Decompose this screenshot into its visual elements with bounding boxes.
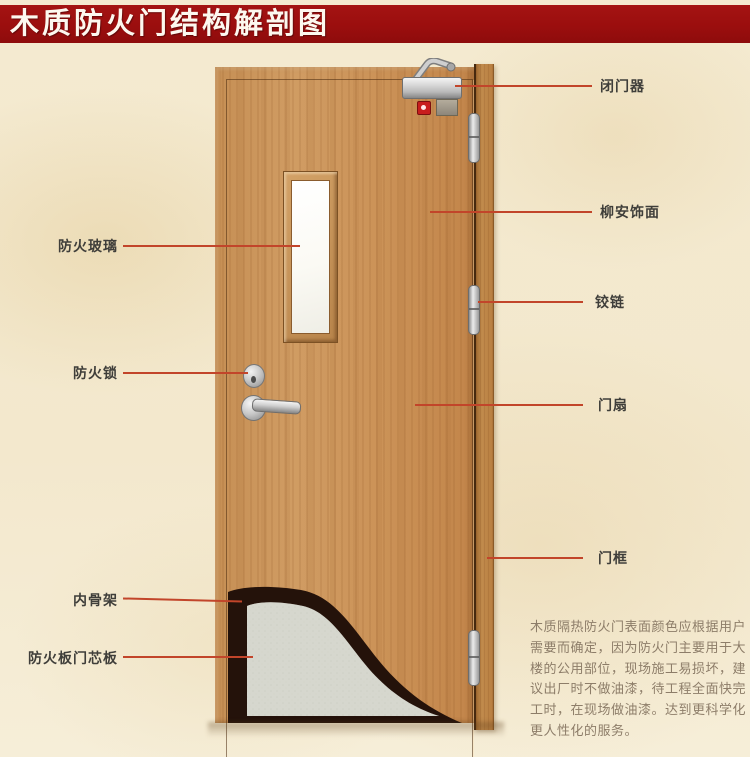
keyhole-icon — [251, 376, 256, 383]
label-door-frame: 门框 — [598, 550, 628, 566]
description-line: 楼的公用部位，现场施工易损坏，建 — [530, 659, 748, 680]
label-fire-lock: 防火锁 — [0, 365, 118, 381]
label-hinge: 铰链 — [595, 294, 625, 310]
description-paragraph: 木质隔热防火门表面颜色应根据用户 需要而确定，因为防火门主要用于大 楼的公用部位… — [530, 617, 748, 742]
callout-line-door-frame — [487, 557, 583, 559]
label-inner-skeleton: 内骨架 — [0, 592, 118, 608]
description-line: 木质隔热防火门表面颜色应根据用户 — [530, 617, 748, 638]
title-banner: 木质防火门结构解剖图 — [0, 5, 750, 43]
description-line: 更人性化的服务。 — [530, 721, 748, 742]
fire-glass-pane — [291, 180, 330, 334]
cutaway-section — [215, 575, 474, 723]
closer-indicator-light — [417, 101, 431, 115]
description-line: 工时，在现场做油漆。达到更科学化 — [530, 700, 748, 721]
label-door-leaf: 门扇 — [598, 397, 628, 413]
callout-line-fire-glass — [123, 245, 300, 247]
description-line: 需要而确定，因为防火门主要用于大 — [530, 638, 748, 659]
door-closer-body — [402, 77, 462, 99]
callout-line-door-leaf — [415, 404, 583, 406]
hinge-bottom — [468, 630, 480, 686]
callout-line-fire-lock — [123, 372, 248, 374]
label-core-board: 防火板门芯板 — [0, 650, 118, 666]
label-veneer: 柳安饰面 — [600, 204, 660, 220]
indicator-dot — [421, 105, 426, 110]
callout-line-hinge — [478, 301, 583, 303]
callout-line-core-board — [123, 656, 253, 658]
fire-lock-cylinder — [243, 364, 265, 388]
page-title: 木质防火门结构解剖图 — [0, 5, 330, 43]
callout-line-veneer — [430, 211, 592, 213]
callout-line-door-closer — [455, 85, 592, 87]
label-fire-glass: 防火玻璃 — [0, 238, 118, 254]
diagram-canvas: 木质防火门结构解剖图 — [0, 0, 750, 757]
hinge-middle — [468, 285, 480, 335]
hinge-top — [468, 113, 480, 163]
glass-window-frame — [283, 171, 338, 343]
closer-mount-plate — [436, 99, 458, 116]
door-shadow — [208, 722, 504, 737]
description-line: 议出厂时不做油漆，待工程全面快完 — [530, 679, 748, 700]
label-door-closer: 闭门器 — [600, 78, 645, 94]
